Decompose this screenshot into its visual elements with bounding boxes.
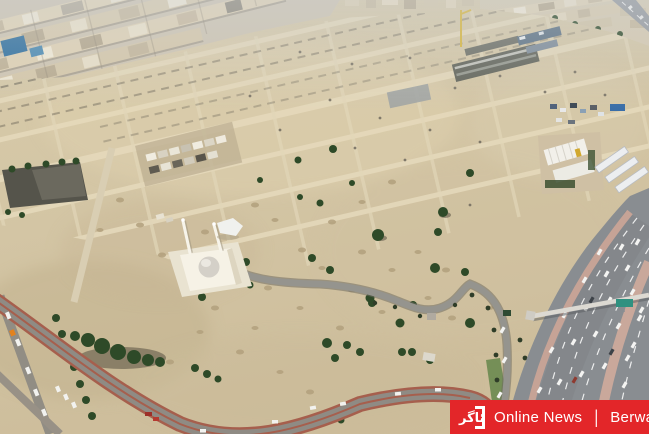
aerial-photo (0, 0, 649, 434)
brand-logo-text: ئاگر (459, 412, 484, 425)
watermark-brand: Berwaz (610, 409, 649, 426)
watermark-separator: | (590, 406, 602, 427)
red-truck (145, 412, 152, 416)
watermark-banner: ئاگر Online News | Berwaz (450, 400, 649, 434)
green-hut (503, 310, 511, 316)
mosque-dome (199, 257, 220, 278)
watermark-title: Online News (494, 409, 582, 426)
haze-overlay (0, 0, 649, 110)
brand-logo: ئاگر (459, 405, 486, 430)
news-photo-frame: ئاگر Online News | Berwaz (0, 0, 649, 434)
